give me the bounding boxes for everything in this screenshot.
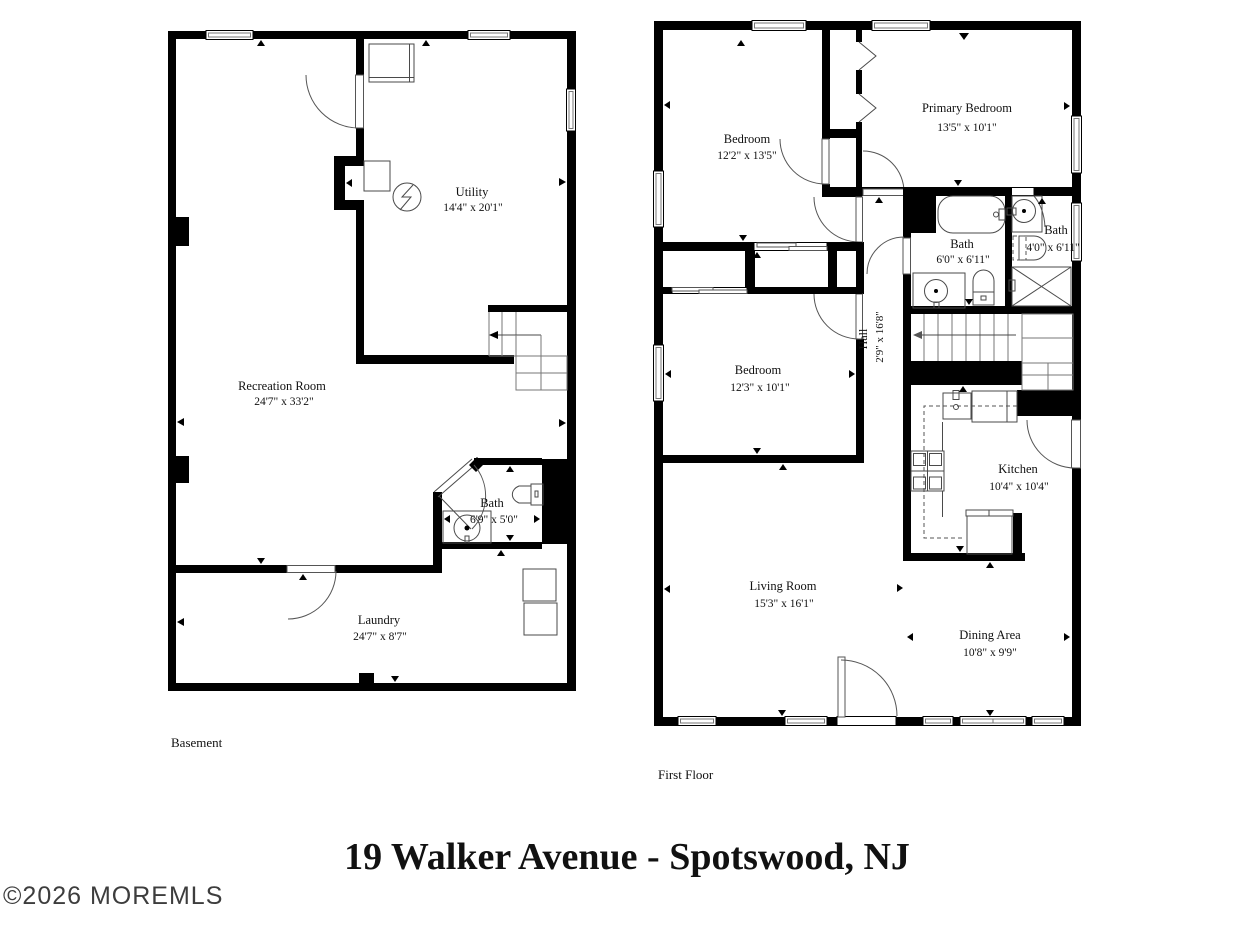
svg-text:2'9" x 16'8": 2'9" x 16'8" [874, 311, 886, 362]
svg-text:©2026 MOREMLS: ©2026 MOREMLS [3, 882, 223, 910]
svg-text:13'5" x 10'1": 13'5" x 10'1" [937, 122, 997, 134]
svg-text:10'4" x 10'4": 10'4" x 10'4" [989, 481, 1049, 493]
svg-text:12'3" x 10'1": 12'3" x 10'1" [730, 382, 790, 394]
svg-text:Bath: Bath [480, 496, 504, 510]
svg-text:6'9" x 5'0": 6'9" x 5'0" [470, 514, 518, 526]
svg-text:Kitchen: Kitchen [998, 462, 1038, 476]
svg-text:12'2" x 13'5": 12'2" x 13'5" [717, 150, 777, 162]
svg-text:19 Walker Avenue - Spotswood,: 19 Walker Avenue - Spotswood, NJ [344, 836, 910, 878]
svg-text:6'0" x 6'11": 6'0" x 6'11" [936, 254, 989, 266]
svg-text:10'8" x 9'9": 10'8" x 9'9" [963, 647, 1017, 659]
svg-text:Utility: Utility [456, 185, 489, 199]
svg-text:Laundry: Laundry [358, 613, 401, 627]
svg-text:15'3" x 16'1": 15'3" x 16'1" [754, 598, 814, 610]
svg-text:Living Room: Living Room [749, 579, 816, 593]
svg-text:Bath: Bath [950, 237, 974, 251]
svg-text:Bedroom: Bedroom [735, 363, 782, 377]
svg-text:Primary Bedroom: Primary Bedroom [922, 101, 1012, 115]
svg-text:4'0" x 6'11": 4'0" x 6'11" [1026, 242, 1079, 254]
svg-text:Basement: Basement [171, 735, 223, 750]
svg-text:Hall: Hall [856, 328, 870, 349]
svg-text:First Floor: First Floor [658, 767, 714, 782]
svg-text:Recreation Room: Recreation Room [238, 379, 326, 393]
svg-text:Dining Area: Dining Area [959, 628, 1021, 642]
svg-text:Bedroom: Bedroom [724, 132, 771, 146]
svg-text:24'7" x 33'2": 24'7" x 33'2" [254, 396, 314, 408]
svg-text:24'7" x 8'7": 24'7" x 8'7" [353, 631, 407, 643]
svg-text:14'4" x 20'1": 14'4" x 20'1" [443, 202, 503, 214]
svg-text:Bath: Bath [1044, 223, 1068, 237]
